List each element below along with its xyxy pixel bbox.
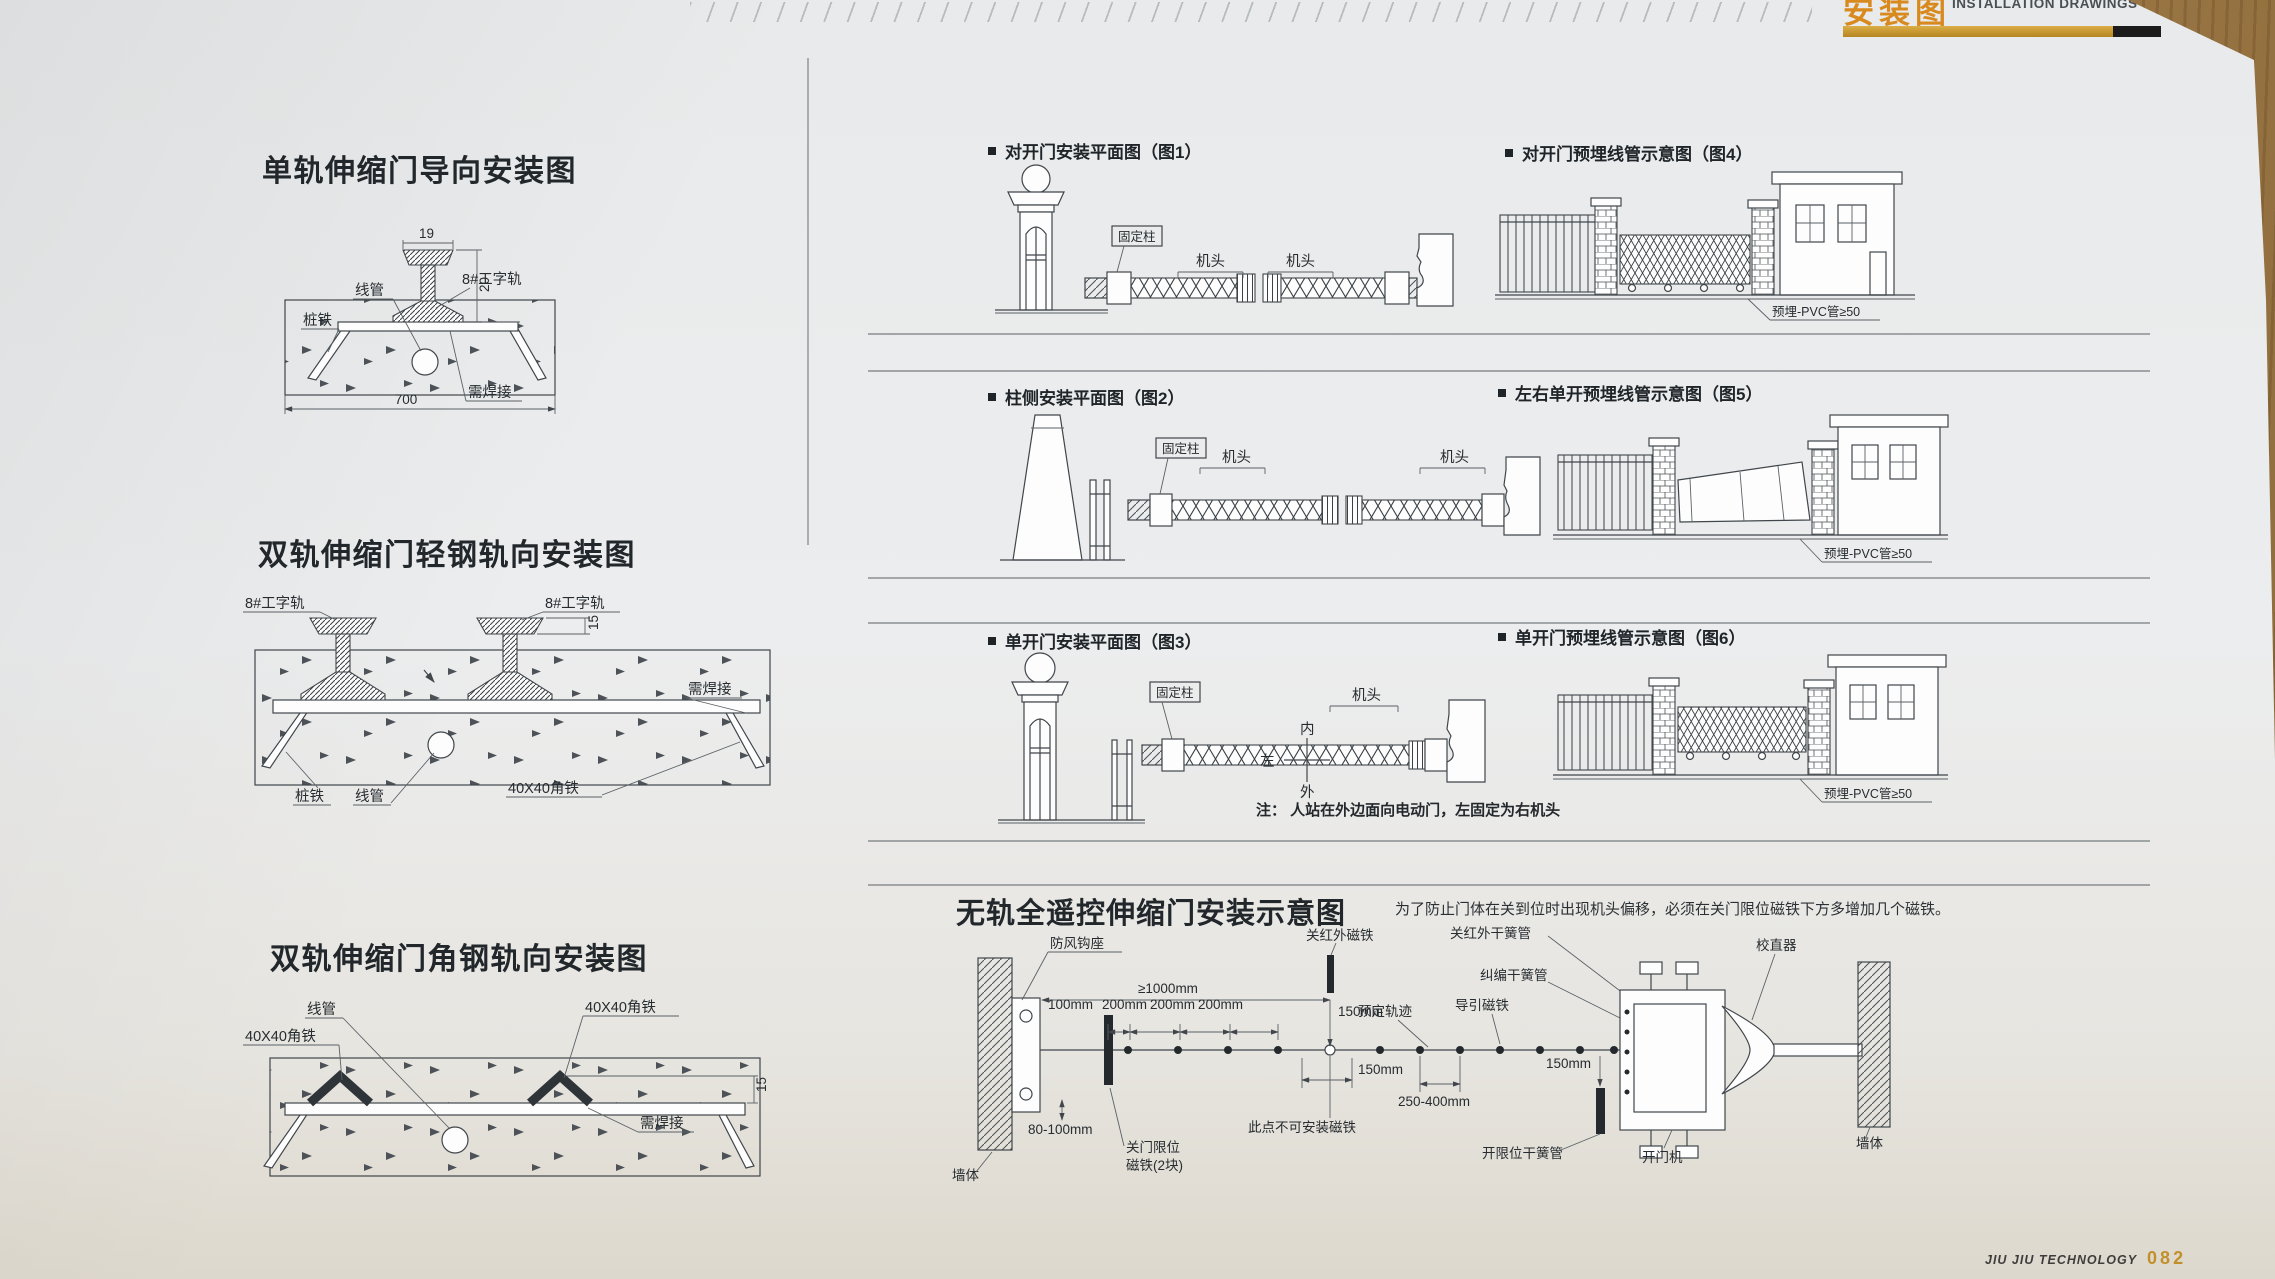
open-limit-reed-label: 开限位干簧管 [1482, 1146, 1563, 1161]
dim-100: 100mm [1048, 997, 1093, 1012]
dim-gte1000: ≥1000mm [1138, 981, 1198, 996]
diagram3-dim-15: 15 [754, 1077, 769, 1092]
dim-250-400: 250-400mm [1398, 1094, 1470, 1109]
diagram3-angle-right-label: 40X40角铁 [585, 999, 656, 1016]
diagram3-conduit-label: 线管 [307, 1001, 336, 1018]
no-magnet-here-label: 此点不可安装磁铁 [1248, 1120, 1356, 1135]
diagram1-single-rail-art: 19 20 700 线管 桩铁 8#工字轨 需焊接 [285, 226, 555, 414]
fig1-art: 固定柱 机头 机头 [995, 165, 1453, 313]
fig1-fixed-post-label: 固定柱 [1118, 229, 1156, 244]
diagram2-pile-iron-label: 桩铁 [295, 788, 324, 805]
dim-200-c: 200mm [1198, 997, 1243, 1012]
catalog-page: 安装图 INSTALLATION DRAWINGS 单轨伸缩门导向安装图 双轨伸… [0, 0, 2275, 1279]
diagram2-conduit-label: 线管 [355, 788, 384, 805]
diagram1-dim-19: 19 [419, 226, 434, 241]
fig5-art: 预埋-PVC管≥50 [1553, 415, 1948, 562]
door-opener-label: 开门机 [1642, 1150, 1683, 1165]
trackless-gate-art: ≥1000mm 关红外磁铁 150mm 100mm 200mm 200mm 20… [952, 926, 1890, 1183]
fig2-fixed-post-label: 固定柱 [1162, 441, 1200, 456]
diagram2-dim-15: 15 [586, 615, 601, 630]
close-ir-magnet-label: 关红外磁铁 [1306, 928, 1374, 943]
guide-magnet-label: 导引磁铁 [1455, 998, 1509, 1013]
diagram1-weld-label: 需焊接 [468, 384, 512, 401]
dim-150-right: 150mm [1546, 1056, 1591, 1071]
fig2-art: 固定柱 机头 机头 [1000, 415, 1540, 560]
fig4-art: 预埋-PVC管≥50 [1495, 172, 1915, 320]
photo-stage: 安装图 INSTALLATION DRAWINGS 单轨伸缩门导向安装图 双轨伸… [0, 0, 2275, 1279]
deviation-reed-label: 纠编干簧管 [1480, 968, 1548, 983]
diagram3-angle-left-label: 40X40角铁 [245, 1028, 316, 1045]
fig3-dir-left: 左 [1260, 753, 1275, 770]
diagram2-angle-iron-label: 40X40角铁 [508, 780, 579, 797]
close-limit-magnet-label-2: 磁铁(2块) [1126, 1158, 1183, 1173]
dim-150-mid: 150mm [1358, 1062, 1403, 1077]
fig1-machine-head-label-2: 机头 [1286, 253, 1315, 270]
diagram3-angle-steel-art: 15 线管 40X40角铁 40X40角铁 需焊接 [243, 999, 769, 1176]
wall-right-label: 墙体 [1856, 1136, 1884, 1151]
planned-track-label: 预定轨迹 [1358, 1004, 1412, 1019]
diagram1-pile-iron-label: 桩铁 [303, 312, 332, 329]
dim-80-100: 80-100mm [1028, 1122, 1093, 1137]
diagram2-double-rail-art: 15 8#工字轨 8#工字轨 需焊接 桩铁 线管 40X40角铁 [243, 595, 770, 805]
diagram1-dim-700: 700 [395, 392, 418, 407]
diagram1-rail-label: 8#工字轨 [462, 271, 522, 288]
fig2-machine-head-label-1: 机头 [1222, 449, 1251, 466]
diagram2-rail-right-label: 8#工字轨 [545, 595, 605, 612]
diagram1-conduit-label: 线管 [355, 282, 384, 299]
fig2-machine-head-label-2: 机头 [1440, 449, 1469, 466]
fig3-art: 固定柱 机头 内 左 外 [998, 653, 1485, 823]
fig3-dir-outer: 外 [1300, 784, 1315, 801]
line-art-layer: 19 20 700 线管 桩铁 8#工字轨 需焊接 [0, 0, 2275, 1279]
close-ir-reed-label: 关红外干簧管 [1450, 926, 1531, 941]
fig5-pvc-label: 预埋-PVC管≥50 [1824, 546, 1912, 561]
straightener-label: 校直器 [1756, 937, 1797, 953]
diagram2-rail-left-label: 8#工字轨 [245, 595, 305, 612]
wind-hook-label: 防风钩座 [1050, 936, 1104, 951]
fig3-machine-head-label: 机头 [1352, 687, 1381, 704]
diagram2-weld-label: 需焊接 [688, 681, 732, 698]
dim-200-a: 200mm [1102, 997, 1147, 1012]
fig6-art: 预埋-PVC管≥50 [1553, 655, 1948, 802]
fig3-dir-inner: 内 [1300, 721, 1315, 738]
close-limit-magnet-label-1: 关门限位 [1126, 1140, 1180, 1155]
fig1-machine-head-label-1: 机头 [1196, 253, 1225, 270]
dim-200-b: 200mm [1150, 997, 1195, 1012]
fig6-pvc-label: 预埋-PVC管≥50 [1824, 786, 1912, 801]
diagram3-weld-label: 需焊接 [640, 1115, 684, 1132]
fig3-fixed-post-label: 固定柱 [1156, 685, 1194, 700]
wall-left-label: 墙体 [952, 1168, 980, 1183]
fig4-pvc-label: 预埋-PVC管≥50 [1772, 304, 1860, 319]
